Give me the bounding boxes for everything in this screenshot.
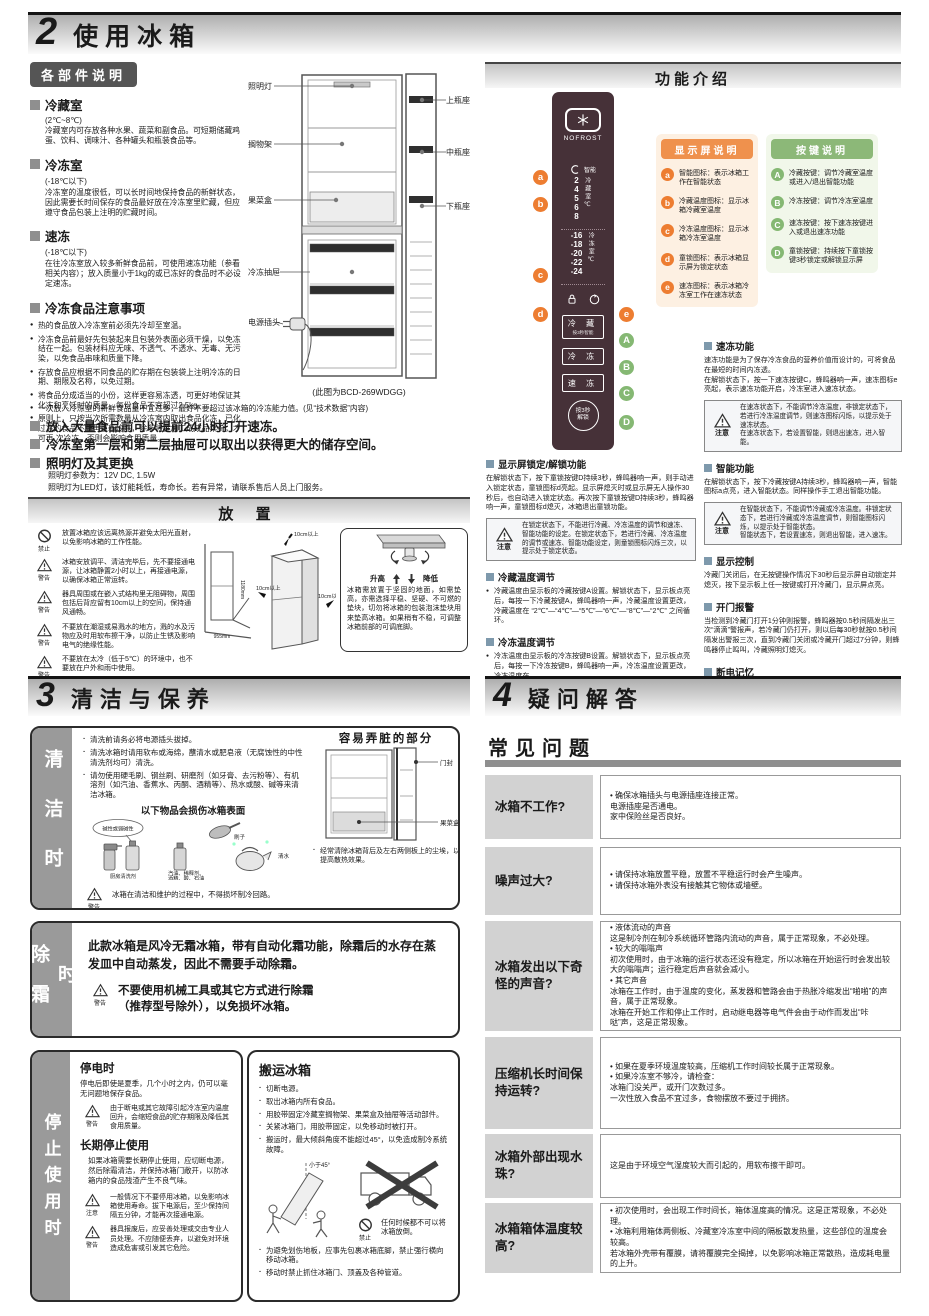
part-item: 速冻 (-18℃以下) 在往冷冻室放入较多新鲜食品前，可使用速冻功能（参看相关内…	[30, 226, 246, 289]
blue-square-icon	[704, 603, 712, 611]
square-marker-icon	[30, 421, 40, 431]
label-angle: 小于45°	[309, 1161, 331, 1169]
caution-box: 注意 在锁定状态下，不能进行冷藏、冷冻温度的调节和速冻、智能功能的设定。在锁定状…	[486, 518, 696, 561]
label-veg-box: 果菜盒	[248, 195, 272, 205]
warning-text: 不要放在太冷（低于5℃）的环境中，也不要放在户外和雨中使用。	[62, 655, 196, 673]
status-icons-row	[566, 293, 601, 306]
warning-label: 警告	[38, 573, 50, 582]
parts-descriptions: 冷藏室 (2℃~8℃) 冷藏室内可存放各种水果、蔬菜和副食品。可短期储藏鸡蛋、饮…	[30, 86, 246, 443]
freezer-button: 冷 冻	[562, 348, 604, 366]
dirty-parts-title: 容易弄脏的部分	[312, 730, 460, 746]
caution-label: 注意	[497, 542, 511, 552]
warning-triangle-icon	[93, 983, 108, 997]
lamp-spec-line1: 照明灯参数为：12V DC, 1.5W	[48, 470, 468, 482]
legend-item: B 冷冻按键：调节冷冻室温度	[771, 196, 873, 209]
smart-indicator: 智能	[570, 164, 596, 175]
frozen-food-notes-title: 冷冻食品注意事项	[30, 298, 246, 317]
caution-text: 在智能状态下，不能调节冷藏或冷冻温度。非锁定状态下，若进行冷藏或冷冻温度调节，则…	[740, 506, 897, 541]
blue-square-icon	[486, 573, 494, 581]
display-control-title: 显示控制	[704, 554, 902, 568]
faq-question: 冰箱外部出现水珠?	[485, 1134, 593, 1198]
part-temp-range: (-18℃以下)	[45, 176, 246, 187]
caution-text: 在锁定状态下，不能进行冷藏、冷冻温度的调节和速冻、智能功能的设定。在锁定状态下，…	[522, 522, 691, 557]
part-temp-range: (2℃~8℃)	[45, 116, 246, 125]
section3-header: 3 清洁与保养	[28, 676, 470, 716]
dirty-parts-panel: 容易弄脏的部分 门封 果菜盒	[312, 730, 460, 868]
square-marker-icon	[30, 159, 40, 169]
faq-divider-bar	[485, 760, 901, 767]
solvent-bottle-icon	[174, 843, 186, 870]
extra-tip-1: 放入大量食品前可以提前24小时打开速冻。	[30, 416, 470, 435]
door-alarm-text: 当检测到冷藏门打开1分钟则报警，蜂鸣器按0.5秒间隔发出三次“滴滴”警报声，若冷…	[704, 617, 902, 656]
warning-triangle-icon	[85, 1104, 100, 1118]
warning-label: 警告	[86, 1240, 98, 1249]
legend-text: 速冻图标：表示冰箱冷冻室工作在速冻状态	[679, 281, 753, 300]
legend-item: a 智能图标：表示冰箱工作在智能状态	[661, 168, 753, 187]
smart-function-text: 在解锁状态下，按下冷藏按键A持续3秒，蜂鸣器响一声，智能图标a点亮，进入智能状态…	[704, 478, 902, 498]
caution-box: 注意 在智能状态下，不能调节冷藏或冷冻温度。非锁定状态下，若进行冷藏或冷冻温度调…	[704, 502, 902, 545]
display-lock-title: 显示屏锁定/解锁功能	[486, 457, 696, 471]
label-shelf: 搁物架	[248, 139, 272, 149]
quick-freeze-text: 速冻功能是为了保存冷冻食品的营养价值而设计的，可将食品在最短的时间内冻透。 在解…	[704, 356, 902, 395]
legend-text: 冷冻按键：调节冷冻室温度	[789, 196, 873, 206]
square-marker-icon	[30, 458, 40, 468]
moving-bullet: 移动时禁止抓住冰箱门、顶盖及各种管道。	[259, 1268, 448, 1278]
part-item: 冷冻室 (-18℃以下) 冷冻室的温度很低，可以长时间地保持食品的新鲜状态，因此…	[30, 155, 246, 218]
raise-lower-row: 升高 降低	[347, 573, 461, 584]
note-bullet: 冷冻食品前最好先包装起来且包装外表面必须干燥，以免冻结在一起。包装材料应无味、不…	[30, 335, 246, 364]
note-bullet: 热的食品放入冷冻室前必须先冷却至室温。	[30, 321, 246, 331]
truck-illustration	[353, 1159, 445, 1211]
placement-warnings: 禁止 放置冰箱应该远离热源并避免太阳光直射，以免影响冰箱的工作性能。 警告 冰箱…	[32, 529, 196, 684]
placement-band: 放 置	[28, 497, 470, 523]
label-top-clearance: 10cm以上	[294, 530, 319, 538]
moving-bullet: 为避免划伤地板，应事先包裹冰箱底脚，禁止强行横向移动冰箱。	[259, 1246, 448, 1266]
diagram-caption: (此图为BCD-269WDGG)	[246, 386, 472, 398]
temp-value: -24	[571, 268, 583, 277]
label-height: 1180mm	[239, 580, 245, 599]
extra-tip-2: 冷冻室第一层和第二层抽屉可以取出以获得更大的储存空间。	[30, 434, 470, 453]
note-bullet: 存放食品应根据不同食品的贮存期在包装袋上注明冷冻的日期、期限及名称，以免过期。	[30, 368, 246, 387]
blue-square-icon	[486, 638, 494, 646]
part-title: 冷冻室	[45, 155, 83, 174]
lower-label: 降低	[423, 573, 438, 584]
cleaning-bullet: 清洗前请务必将电源插头拔掉。	[82, 735, 304, 745]
warning-triangle-icon	[37, 623, 52, 637]
legend-item: d 童锁图标：表示冰箱显示屏为锁定状态	[661, 253, 753, 272]
callout-c: c	[533, 268, 548, 283]
divider	[561, 229, 605, 230]
fridge-temp-adjust-title: 冷藏温度调节	[486, 570, 696, 584]
kettle-icon	[232, 841, 271, 871]
cleaning-warn-row: 警告 冰箱在清洁和维护的过程中，不得损坏制冷回路。	[82, 887, 304, 910]
section4-number: 4	[493, 678, 512, 712]
damage-items-title: 以下物品会损伤冰箱表面	[82, 803, 304, 817]
square-marker-icon	[30, 100, 40, 110]
quick-freeze-title: 速冻功能	[704, 339, 902, 353]
warning-label: 警告	[38, 605, 50, 614]
callout-a: a	[533, 170, 548, 185]
down-arrow-icon	[408, 574, 415, 584]
legend-key-badge: c	[661, 224, 674, 237]
faq-title: 常见问题	[488, 732, 596, 761]
leveling-foot-drawing	[347, 533, 463, 567]
placement-warning-row: 警告 不要放在潮湿或易溅水的地方，溅的水及污物应及时用软布擦干净，以防止生锈及影…	[32, 623, 196, 650]
quick-freeze-button: 速 冻	[562, 374, 604, 392]
legend-item: b 冷藏温度图标：显示冰箱冷藏室温度	[661, 196, 753, 215]
display-legend-header: 显示屏说明	[661, 139, 753, 159]
display-lock-text: 在解锁状态下，按下童锁按键D持续3秒，蜂鸣器响一声，则手动进入锁定状态，童锁图标…	[486, 474, 696, 513]
warning-text: 器具周围或在嵌入式结构里无阻碍物，周围包括后背应留有10cm以上的空间，保持通风…	[62, 590, 196, 617]
display-legend: 显示屏说明 a 智能图标：表示冰箱工作在智能状态 b 冷藏温度图标：显示冰箱冷藏…	[656, 134, 758, 307]
warning-triangle-icon	[37, 558, 52, 572]
callout-d: d	[533, 307, 548, 322]
fridge-temp-adjust-text: 冷藏温度由显示板的冷藏按键A设置。解锁状态下，显示板点亮后，每按一下冷藏按键A，…	[486, 587, 696, 626]
smart-arc-icon	[570, 164, 581, 175]
prohibit-text: 任何时候都不可以将冰箱放倒。	[381, 1218, 448, 1237]
parts-section-badge: 各部件说明	[30, 62, 137, 87]
disposal-warn: 警告 器具报废后，应妥善处理或交由专业人员处理。不应随便丢弃，以避免对环境造成危…	[80, 1225, 233, 1252]
key-legend-items: A 冷藏按键：调节冷藏室温度或进入/退出智能功能 B 冷冻按键：调节冷冻室温度 …	[771, 168, 873, 266]
blue-square-icon	[704, 668, 712, 676]
faq-answer: • 确保冰箱插头与电源插座连接正常。 电源插座是否通电。 家中保险丝是否良好。	[600, 775, 901, 839]
placement-warning-row: 禁止 放置冰箱应该远离热源并避免太阳光直射，以免影响冰箱的工作性能。	[32, 529, 196, 553]
moving-bullet: 关紧冰箱门，用胶带固定，以免移动时被打开。	[259, 1122, 448, 1132]
part-text: 冷藏室内可存放各种水果、蔬菜和副食品。可短期储藏鸡蛋、饮料、调味汁、各种罐头和瓶…	[45, 126, 246, 146]
callout-D: D	[619, 415, 634, 430]
label-door-seal: 门封	[440, 758, 454, 767]
moving-bullets: 切断电源。取出冰箱内所有食品。用胶带固定冷藏室搁物架、果菜盒及抽屉等活动部件。关…	[259, 1084, 448, 1155]
snowflake-icon	[576, 113, 590, 127]
legend-item: e 速冻图标：表示冰箱冷冻室工作在速冻状态	[661, 281, 753, 300]
fridge-button-sub: 按3秒智能	[563, 330, 603, 336]
legend-item: C 速冻按键：按下速冻按键进入或退出速冻功能	[771, 218, 873, 237]
door-alarm-title: 开门报警	[704, 600, 902, 614]
freezer-temp-display: -16-18-20-22-24 冷冻室℃	[571, 232, 596, 277]
fridge-unit-label: 冷藏室℃	[583, 177, 592, 222]
faq-answer: • 如果在夏季环境温度较高，压缩机工作时间较长属于正常现象。 • 如果冷冻室不够…	[600, 1037, 901, 1129]
blue-square-icon	[704, 464, 712, 472]
warning-triangle-icon	[37, 590, 52, 604]
fridge-temp-values: 24568	[574, 177, 578, 222]
warning-text: 不要放在潮湿或易溅水的地方，溅的水及污物应及时用软布擦干净，以防止生锈及影响电气…	[62, 623, 196, 650]
warning-label: 警告	[94, 998, 106, 1007]
freezer-unit-label: 冷冻室℃	[586, 232, 595, 277]
legend-text: 冷藏温度图标：显示冰箱冷藏室温度	[679, 196, 753, 215]
faq-answer: • 液体流动的声音 这是制冷剂在制冷系统循环管路内流动的声音，属于正常现象，不必…	[600, 921, 901, 1031]
power-outage-warn: 警告 由于断电或其它故障引起冷冻室内温度回升，会缩短食品的贮存期限及降低其食用质…	[80, 1104, 233, 1131]
part-text: 冷冻室的温度很低，可以长时间地保持食品的新鲜状态，因此需要长时间保存的食品最好放…	[45, 188, 246, 218]
label-water: 清水	[278, 852, 290, 860]
bottle-icon	[126, 841, 139, 870]
legend-text: 冷冻温度图标：显示冰箱冷冻室温度	[679, 224, 753, 243]
warning-label: 警告	[88, 902, 100, 910]
warning-label: 禁止	[359, 1233, 371, 1242]
label-bottom-rack: 下瓶座	[446, 201, 470, 211]
section3-number: 3	[36, 678, 55, 712]
faq-question: 冰箱不工作?	[485, 775, 593, 839]
warning-text: 放置冰箱应该远离热源并避免太阳光直射，以免影响冰箱的工作性能。	[62, 529, 196, 547]
callout-b: b	[533, 197, 548, 212]
warning-triangle-icon	[87, 887, 102, 901]
warning-text: 冰箱在清洁和维护的过程中，不得损坏制冷回路。	[112, 887, 275, 900]
longterm-text: 如果冰箱需要长期停止使用，应切断电源，然后除霜清洁，并保持冰箱门敞开，以防冰箱内…	[80, 1156, 233, 1186]
warning-text: 器具报废后，应妥善处理或交由专业人员处理。不应随便丢弃，以避免对环境造成危害或引…	[110, 1225, 233, 1252]
defrost-side-label: 除霜时	[32, 923, 72, 1036]
legend-text: 速冻按键：按下速冻按键进入或退出速冻功能	[789, 218, 873, 237]
faq-question: 噪声过大?	[485, 847, 593, 915]
moving-title: 搬运冰箱	[259, 1060, 448, 1079]
legend-key-badge: C	[771, 218, 784, 231]
carrying-illustration: 小于45°	[259, 1159, 345, 1239]
square-marker-icon	[30, 439, 40, 449]
display-legend-items: a 智能图标：表示冰箱工作在智能状态 b 冷藏温度图标：显示冰箱冷藏室温度 c …	[661, 168, 753, 300]
moving-box: 搬运冰箱 切断电源。取出冰箱内所有食品。用胶带固定冷藏室搁物架、果菜盒及抽屉等活…	[247, 1050, 460, 1302]
blue-square-icon	[486, 460, 494, 468]
damage-items-illustration: 碱性或弱碱性	[82, 818, 294, 880]
section3-title: 清洁与保养	[71, 682, 216, 714]
quick-freeze-icon	[588, 293, 601, 306]
defrost-block: 除霜时 此款冰箱是风冷无霜冰箱，带有自动化霜功能，除霜后的水存在蒸发皿中自动蒸发…	[30, 921, 460, 1038]
prohibit-icon	[37, 529, 52, 543]
smart-label: 智能	[584, 165, 596, 174]
raise-label: 升高	[370, 573, 385, 584]
label-freezer-drawer: 冷冻抽屉	[248, 267, 280, 277]
parts-badge-label: 各部件说明	[30, 62, 137, 87]
part-text: 在往冷冻室放入较多新鲜食品前，可使用速冻功能（参看相关内容）；放入质量小于1kg…	[45, 259, 246, 289]
label-plug: 电源插头	[248, 317, 280, 327]
lamp-specs: 照明灯参数为：12V DC, 1.5W 照明灯为LED灯，该灯能耗低，寿命长。若…	[48, 470, 468, 494]
fridge-button: 冷 藏按3秒智能	[562, 315, 604, 339]
key-legend-header: 按键说明	[771, 139, 873, 159]
faq-answer: • 初次使用时，会出现工作时间长，箱体温度高的情况。这是正常现象，不必处理。 •…	[600, 1203, 901, 1273]
faq-answer: 这是由于环境空气湿度较大而引起的，用软布擦干即可。	[600, 1134, 901, 1198]
caution-box: 注意 在速冻状态下，不能调节冷冻温度，非锁定状态下，若进行冷冻温度调节，则速冻图…	[704, 400, 902, 452]
part-title: 冷藏室	[45, 95, 83, 114]
moving-bullet: 切断电源。	[259, 1084, 448, 1094]
label-right-clearance: 10cm以上	[318, 592, 336, 600]
legend-key-badge: B	[771, 196, 784, 209]
manual-page: 2 使用冰箱 各部件说明 冷藏室 (2℃~8℃) 冷藏室内可存放各种水果、蔬菜和…	[0, 0, 929, 1316]
blue-square-icon	[704, 342, 712, 350]
label-light: 照明灯	[248, 81, 272, 91]
warning-text: 不要使用机械工具或其它方式进行除霜 （推荐型号除外），以免损坏冰箱。	[118, 983, 314, 1015]
label-kitchen-cleaner: 厨房清洗剂	[110, 872, 136, 880]
section4-title: 疑问解答	[528, 682, 644, 714]
spray-bottle-icon	[104, 844, 122, 870]
legend-text: 冷藏按键：调节冷藏室温度或进入/退出智能功能	[789, 168, 873, 187]
cleaning-bullet: 请勿使用硬毛刷、钢丝刷、研磨剂（如牙膏、去污粉等）、有机溶剂（如汽油、香蕉水、丙…	[82, 771, 304, 801]
warning-label: 禁止	[38, 544, 50, 553]
dirty-parts-note: 经常清除冰箱背后及左右两侧板上的尘埃，以提高散热效果。	[312, 847, 460, 865]
caution-label: 注意	[715, 428, 729, 438]
temp-value: 8	[574, 213, 578, 222]
fridge-drawing: 照明灯 上瓶座 搁物架 中瓶座 果菜盒 下瓶座 冷冻抽屉 电源插头	[246, 72, 472, 384]
legend-text: 童锁图标：表示冰箱显示屏为锁定状态	[679, 253, 753, 272]
functions-left-column: 显示屏锁定/解锁功能 在解锁状态下，按下童锁按键D持续3秒，蜂鸣器响一声，则手动…	[486, 448, 696, 701]
callout-A: A	[619, 333, 634, 348]
part-temp-range: (-18℃以下)	[45, 247, 246, 258]
placement-warning-row: 警告 器具周围或在嵌入式结构里无阻碍物，周围包括后背应留有10cm以上的空间，保…	[32, 590, 196, 617]
caution-text: 在速冻状态下，不能调节冷冻温度，非锁定状态下，若进行冷冻温度调节，则速冻图标闪烁…	[740, 404, 897, 448]
clearance-diagram: 10cm以上 10cm以上 10cm以上	[256, 528, 336, 656]
section2-title: 使用冰箱	[73, 17, 201, 53]
warning-triangle-icon	[37, 655, 52, 669]
cleaning-bullet: 清洗冰箱时请用软布或海绵，蘸清水或肥皂液（无腐蚀性的中性清洗剂均可）清洗。	[82, 748, 304, 768]
cleaning-side-label: 清洁时	[32, 728, 72, 908]
longterm-note: 注意 一般情况下不要停用冰箱，以免影响冰箱使用寿命。拔下电源后，至少保持间隔五分…	[80, 1193, 233, 1220]
warning-text: 一般情况下不要停用冰箱，以免影响冰箱使用寿命。拔下电源后，至少保持间隔五分钟，才…	[110, 1193, 233, 1220]
label-mid-rack: 中瓶座	[446, 147, 470, 157]
moving-bullet: 取出冰箱内所有食品。	[259, 1097, 448, 1107]
smart-function-title: 智能功能	[704, 461, 902, 475]
legend-text: 智能图标：表示冰箱工作在智能状态	[679, 168, 753, 187]
faq-question: 压缩机长时间保持运转?	[485, 1037, 593, 1129]
power-outage-title: 停电时	[80, 1060, 233, 1076]
legend-item: c 冷冻温度图标：显示冰箱冷冻室温度	[661, 224, 753, 243]
part-item: 冷藏室 (2℃~8℃) 冷藏室内可存放各种水果、蔬菜和副食品。可短期储藏鸡蛋、饮…	[30, 95, 246, 146]
longterm-title: 长期停止使用	[80, 1137, 233, 1153]
warning-label: 注意	[86, 1208, 98, 1217]
square-marker-icon	[30, 231, 40, 241]
lock-button: 按3秒 解锁	[568, 400, 599, 431]
warning-text: 由于断电或其它故障引起冷冻室内温度回升，会缩短食品的贮存期限及降低其食用质量。	[110, 1104, 233, 1131]
moving-bullet: 用胶带固定冷藏室搁物架、果菜盒及抽屉等活动部件。	[259, 1110, 448, 1120]
legend-key-badge: b	[661, 196, 674, 209]
display-control-text: 冷藏门关闭后，在无按键操作情况下30秒后显示屏自动锁定并熄灭，按下显示板上任一按…	[704, 571, 902, 591]
caution-label: 注意	[715, 526, 729, 536]
blue-square-icon	[704, 557, 712, 565]
leveling-text: 冰箱需放置于坚固的地面，如需垫高，亦需选择平稳、坚硬、不可燃的垫块，切勿将冰箱的…	[347, 586, 461, 632]
warning-label: 警告	[38, 638, 50, 647]
moving-bullet: 搬运时，最大倾斜角度不能超过45°，以免造成制冷系统故障。	[259, 1135, 448, 1155]
freezer-temp-values: -16-18-20-22-24	[571, 232, 583, 277]
dirty-parts-drawing: 门封 果菜盒	[312, 746, 460, 842]
label-left-clearance: 10cm以上	[256, 584, 281, 592]
part-title: 速冻	[45, 226, 70, 245]
warning-triangle-icon	[714, 511, 731, 526]
lamp-spec-line2: 照明灯为LED灯，该灯能耗低，寿命长。若有异常，请联系售后人员上门服务。	[48, 482, 468, 494]
stop-side-label: 停止使用时	[32, 1052, 70, 1300]
key-legend: 按键说明 A 冷藏按键：调节冷藏室温度或进入/退出智能功能 B 冷冻按键：调节冷…	[766, 134, 878, 273]
warning-text: 冰箱安放调平、清洁完毕后，先不要接通电源，让冰箱静置2小时以上，再接通电源，以确…	[62, 558, 196, 585]
label-brush: 刷子	[234, 833, 246, 841]
up-arrow-icon	[393, 574, 400, 584]
callout-B: B	[619, 360, 634, 375]
legend-text: 童锁按键：持续按下童锁按键3秒锁定或解锁显示屏	[789, 246, 873, 265]
section4-header: 4 疑问解答	[485, 676, 901, 716]
label-alkaline: 碱性或弱碱性	[102, 825, 133, 833]
legend-key-badge: e	[661, 281, 674, 294]
faq-question: 冰箱发出以下奇怪的声音?	[485, 921, 593, 1031]
callout-C: C	[619, 386, 634, 401]
functions-band: 功能介绍	[485, 62, 901, 88]
faq-answer: • 请保持冰箱放置平稳，放置不平稳运行时会产生噪声。 • 请保持冰箱外表没有接触…	[600, 847, 901, 915]
freezer-temp-adjust-title: 冷冻温度调节	[486, 635, 696, 649]
square-marker-icon	[30, 303, 40, 313]
child-lock-icon	[566, 293, 578, 305]
fridge-parts-diagram: 照明灯 上瓶座 搁物架 中瓶座 果菜盒 下瓶座 冷冻抽屉 电源插头	[246, 72, 472, 386]
leveling-inset: 升高 降低 冰箱需放置于坚固的地面，如需垫高，亦需选择平稳、坚硬、不可燃的垫块，…	[340, 528, 468, 652]
warning-label: 警告	[86, 1119, 98, 1128]
prohibit-icon	[358, 1218, 373, 1232]
brand-label: NOFROST	[564, 135, 603, 142]
section2-header: 2 使用冰箱	[28, 12, 901, 54]
control-panel: NOFROST 智能 24568 冷藏室℃ -16-18-20-22-24 冷冻…	[552, 92, 614, 450]
legend-key-badge: D	[771, 246, 784, 259]
cleaning-block: 清洁时 清洗前请务必将电源插头拔掉。 清洗冰箱时请用软布或海绵，蘸清水或肥皂液（…	[30, 726, 460, 910]
legend-item: A 冷藏按键：调节冷藏室温度或进入/退出智能功能	[771, 168, 873, 187]
wide-note-bullet: 一次放入冷冻室的新鲜食品量不宜过多，最好不要超过该冰箱的冷冻能力值。(见“技术数…	[30, 404, 470, 414]
functions-right-column: 速冻功能 速冻功能是为了保存冷冻食品的营养价值而设计的，可将食品在最短的时间内冻…	[704, 330, 902, 701]
warning-triangle-icon	[714, 413, 731, 428]
section2-number: 2	[36, 13, 57, 51]
legend-key-badge: d	[661, 253, 674, 266]
label-top-rack: 上瓶座	[446, 95, 470, 105]
corner-clearance-diagram: 1180mm 955mm	[197, 540, 253, 640]
warning-triangle-icon	[496, 527, 513, 542]
label-width: 955mm	[214, 634, 231, 640]
legend-key-badge: a	[661, 168, 674, 181]
stop-using-block: 停止使用时 停电时 停电后即使是夏季，几个小时之内，仍可以毫无问题地保存食品。 …	[30, 1050, 243, 1302]
faq-question: 冰箱箱体温度较高?	[485, 1203, 593, 1273]
legend-key-badge: A	[771, 168, 784, 181]
callout-e: e	[619, 307, 634, 322]
defrost-warn-row: 警告 不要使用机械工具或其它方式进行除霜 （推荐型号除外），以免损坏冰箱。	[88, 983, 444, 1015]
fridge-temp-display: 24568 冷藏室℃	[574, 177, 591, 222]
warning-triangle-icon	[85, 1225, 100, 1239]
divider	[561, 284, 605, 285]
label-crisper: 果菜盒	[440, 818, 460, 827]
legend-item: D 童锁按键：持续按下童锁按键3秒锁定或解锁显示屏	[771, 246, 873, 265]
placement-warning-row: 警告 冰箱安放调平、清洁完毕后，先不要接通电源，让冰箱静置2小时以上，再接通电源…	[32, 558, 196, 585]
nofrost-logo	[565, 108, 601, 132]
defrost-text: 此款冰箱是风冷无霜冰箱，带有自动化霜功能，除霜后的水存在蒸发皿中自动蒸发，因此不…	[88, 937, 444, 973]
warning-triangle-icon	[85, 1193, 100, 1207]
power-outage-text: 停电后即使是夏季，几个小时之内，仍可以毫无问题地保存食品。	[80, 1079, 233, 1099]
